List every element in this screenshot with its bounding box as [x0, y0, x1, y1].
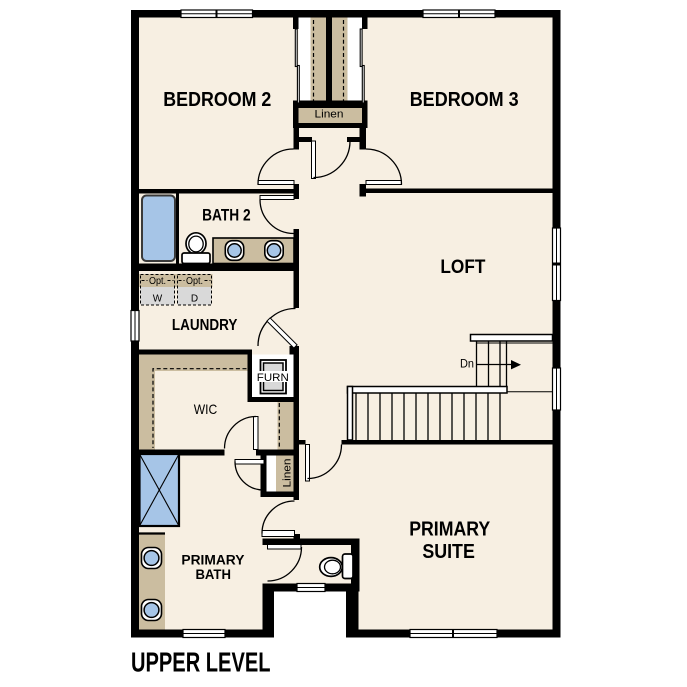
svg-text:Opt.: Opt. — [186, 276, 203, 287]
svg-text:SUITE: SUITE — [422, 541, 475, 563]
svg-text:Opt.: Opt. — [149, 276, 166, 287]
svg-text:BEDROOM 2: BEDROOM 2 — [163, 89, 271, 111]
svg-text:FURN: FURN — [257, 372, 289, 384]
svg-text:BEDROOM 3: BEDROOM 3 — [410, 89, 519, 111]
svg-text:Linen: Linen — [281, 459, 293, 488]
svg-text:D: D — [191, 294, 198, 305]
svg-text:WIC: WIC — [194, 401, 218, 417]
svg-text:Dn: Dn — [460, 359, 474, 371]
svg-text:PRIMARY: PRIMARY — [181, 552, 244, 567]
svg-text:BATH 2: BATH 2 — [202, 206, 251, 224]
svg-text:PRIMARY: PRIMARY — [409, 519, 491, 541]
svg-text:UPPER LEVEL: UPPER LEVEL — [131, 646, 271, 677]
svg-text:LOFT: LOFT — [440, 257, 485, 278]
svg-text:LAUNDRY: LAUNDRY — [172, 317, 238, 334]
svg-text:BATH: BATH — [195, 567, 231, 582]
svg-text:W: W — [153, 294, 163, 305]
svg-text:Linen: Linen — [315, 109, 344, 121]
